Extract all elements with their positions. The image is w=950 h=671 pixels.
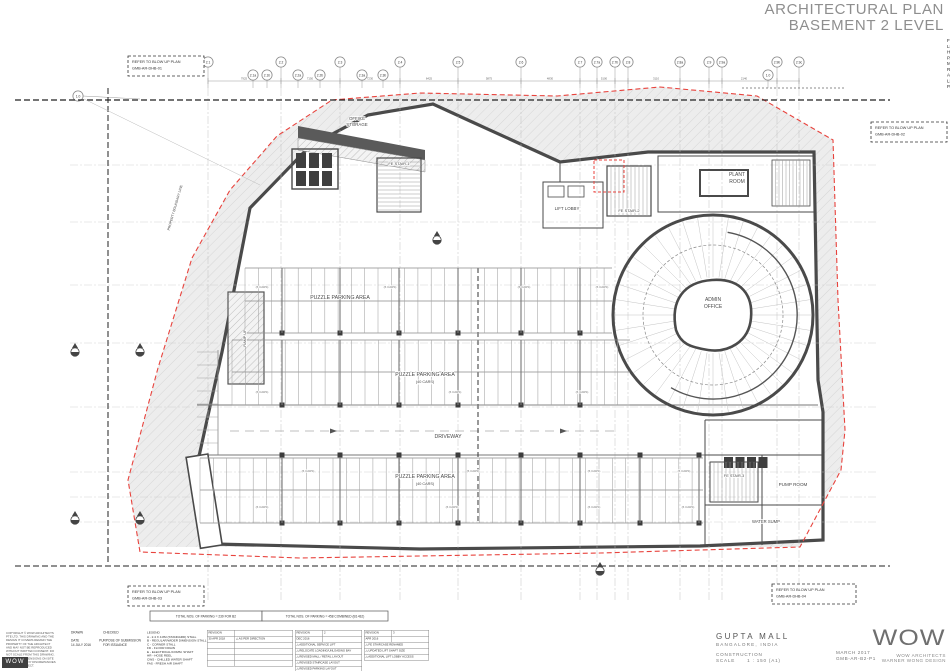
grid-bubble-label: 1.0: [766, 73, 771, 77]
checked-label: CHECKED: [103, 631, 119, 635]
issue-block: MARCH 2017 GMB-AR-B2-P1: [836, 650, 876, 662]
car-count-label: (6 CARS): [256, 390, 269, 394]
dimension-value: 3110: [653, 76, 659, 80]
plan-label: PUMP ROOM: [779, 482, 808, 487]
car-count-label: (6 CARS): [518, 285, 531, 289]
dimension-value: 7925: [241, 76, 248, 80]
purpose-label: PURPOSE OF SUBMISSION: [99, 639, 141, 643]
dimension-value: 4830: [547, 76, 554, 80]
revision-tables: REVISION30 APR 2018△ AS PER DIRECTIONREV…: [207, 630, 667, 671]
firm-logo-block: WOW WOW ARCHITECTS WARNER WONG DESIGN: [876, 628, 946, 664]
plan-label: PLANT: [729, 172, 745, 178]
sheet-title-line1: ARCHITECTURAL PLAN: [765, 2, 944, 18]
plan-label: LIFT LOBBY: [555, 206, 580, 211]
blowup-note-text: REFER TO BLOW UP PLAN: [132, 590, 181, 594]
parking-notes-bar: TOTAL NOS. OF PARKING = 239 FOR B2TOTAL …: [150, 611, 388, 621]
parking-note: TOTAL NOS. OF PARKING = 458 COMBINED (B1…: [286, 614, 365, 618]
drawing-sheet: OFFICESTORAGEFE STAIR-1LIFT LOBBYFE STAI…: [0, 0, 950, 671]
car-count-label: (6 CARS): [588, 469, 601, 473]
grid-bubble-label: 2.4: [398, 60, 403, 64]
spiral-ramp: [613, 215, 813, 415]
legend-title: LEGEND: [147, 631, 207, 635]
car-count-label: (6 CARS): [302, 469, 315, 473]
footer-badge: WOW: [2, 657, 28, 668]
blowup-note-text: GMB-AR-DHB-01: [132, 66, 162, 70]
plan-label: DRIVEWAY: [434, 434, 462, 440]
revision-table-2: REVISION2DEC 2016△ ADDITIONAL SERVICE LI…: [295, 630, 362, 671]
car-count-label: (6 CARS): [682, 505, 695, 509]
grid-bubble-label: 2.9a: [719, 60, 726, 64]
dimension-value: 2140: [741, 76, 748, 80]
car-count-label: (6 CARS): [678, 469, 691, 473]
car-count-label: (6 CARS): [256, 285, 269, 289]
drawing-number: GMB-AR-B2-P1: [836, 656, 876, 662]
grid-bubble-label: 2.2a: [295, 73, 302, 77]
plan-label: FE STAIR-3: [724, 474, 744, 478]
blowup-note-text: GMB-AR-DHB-04: [776, 594, 806, 598]
plan-label: RAMP UP: [243, 329, 247, 347]
dimension-value: 7230: [367, 76, 374, 80]
grid-bubble-label: 2.2b: [317, 73, 324, 77]
grid-bubble-label: 2.8: [626, 60, 631, 64]
car-count-label: (6 CARS): [467, 469, 480, 473]
title-block-strip: COPYRIGHT © WOW ARCHITECTS PTE LTD. THIS…: [0, 628, 950, 671]
grid-bubble-label: 2.6: [519, 60, 524, 64]
project-location: BANGALORE, INDIA: [716, 642, 790, 647]
grid-bubble-label: 2.8a: [677, 60, 684, 64]
blowup-note-text: REFER TO BLOW UP PLAN: [776, 588, 825, 592]
revision-table-1: REVISION30 APR 2018△ AS PER DIRECTION: [207, 630, 293, 667]
dimension-value: 5100: [601, 76, 608, 80]
grid-bubble-label: 1.0: [76, 94, 81, 98]
dimension-value: 5875: [486, 76, 493, 80]
area-schedule-table: FLOOR PLATE4268LIFT LOBBY/WAITING AREA/H…: [845, 38, 947, 142]
car-count-label: (6 CARS): [449, 390, 462, 394]
grid-bubble-label: 2.7a: [594, 60, 601, 64]
sheet-title-line2: BASEMENT 2 LEVEL: [765, 18, 944, 34]
sheet-title: ARCHITECTURAL PLAN BASEMENT 2 LEVEL: [765, 2, 944, 34]
date-label: DATE: [71, 639, 99, 643]
car-count-label: (6 CARS): [446, 505, 459, 509]
scale-label: SCALE: [716, 658, 735, 663]
plan-label: STORAGE: [346, 122, 367, 127]
blowup-note-text: GMB-AR-DHB-03: [132, 596, 162, 600]
car-count-label: (6 CARS): [384, 285, 397, 289]
grid-bubble-label: 2.5: [456, 60, 461, 64]
scale-value: 1 : 150 (A1): [747, 658, 781, 663]
ramp-island: [675, 280, 752, 351]
plan-label: (40 CARS): [416, 380, 435, 384]
dimension-value: 6425: [426, 76, 433, 80]
plan-label: FE STAIR-2: [618, 208, 640, 213]
plan-label: PUZZLE PARKING AREA: [310, 295, 370, 301]
plan-label: ROOM: [729, 179, 745, 185]
grid-bubble-label: 2.3: [338, 60, 343, 64]
project-name: GUPTA MALL: [716, 632, 790, 641]
dimension-value: 7150: [307, 76, 314, 80]
plan-label: OFFICE: [349, 116, 365, 121]
car-count-label: (6 CARS): [596, 285, 609, 289]
parking-note: TOTAL NOS. OF PARKING = 239 FOR B2: [176, 614, 236, 618]
grid-bubble-label: 2.3a: [359, 73, 366, 77]
legend-item: FAS - FRESH AIR SHAFT: [147, 662, 207, 666]
grid-bubble-label: 2.1a: [250, 73, 257, 77]
drawn-label: DRAWN: [71, 631, 103, 635]
plan-label: ADMIN: [705, 297, 722, 303]
plan-label: FE STAIR-1: [388, 161, 410, 166]
revision-table-3: REVISION3APR 2016△ FE STAIRCASE RENAMED△…: [364, 630, 429, 661]
grid-bubble-label: 2.2: [279, 60, 284, 64]
plan-label: PROPERTY BOUNDARY LINE: [167, 184, 184, 231]
purpose-value: FOR ISSUANCE: [103, 644, 127, 648]
firm-subname: WARNER WONG DESIGN: [876, 658, 946, 664]
plan-label: (40 CARS): [416, 482, 435, 486]
grid-bubble-label: 2.3b: [380, 73, 387, 77]
project-phase: CONSTRUCTION: [716, 652, 790, 657]
floor-plan-drawing: OFFICESTORAGEFE STAIR-1LIFT LOBBYFE STAI…: [0, 0, 950, 671]
car-count-label: (6 CARS): [576, 390, 589, 394]
plan-label: WATER SUMP: [752, 519, 780, 524]
grid-bubble-label: 2.7: [578, 60, 583, 64]
car-count-label: (6 CARS): [588, 505, 601, 509]
date-value: 14 JULY 2016: [71, 644, 103, 648]
plan-label: OFFICE: [704, 304, 723, 310]
grid-bubble-label: 2.9: [707, 60, 712, 64]
grid-bubble-label: 2.1b: [264, 73, 271, 77]
grid-bubble-label: 2.1: [206, 60, 211, 64]
wow-logo: WOW: [873, 628, 946, 648]
plan-label: PUZZLE PARKING AREA: [395, 474, 455, 480]
grid-bubble-label: 2.9c: [796, 60, 803, 64]
grid-bubble-label: 2.7b: [612, 60, 619, 64]
car-count-label: (6 CARS): [256, 505, 269, 509]
project-block: GUPTA MALL BANGALORE, INDIA CONSTRUCTION…: [716, 632, 790, 663]
grid-bubble-label: 2.9b: [774, 60, 781, 64]
plan-label: PUZZLE PARKING AREA: [395, 372, 455, 378]
blowup-note-text: REFER TO BLOW UP PLAN: [132, 60, 181, 64]
